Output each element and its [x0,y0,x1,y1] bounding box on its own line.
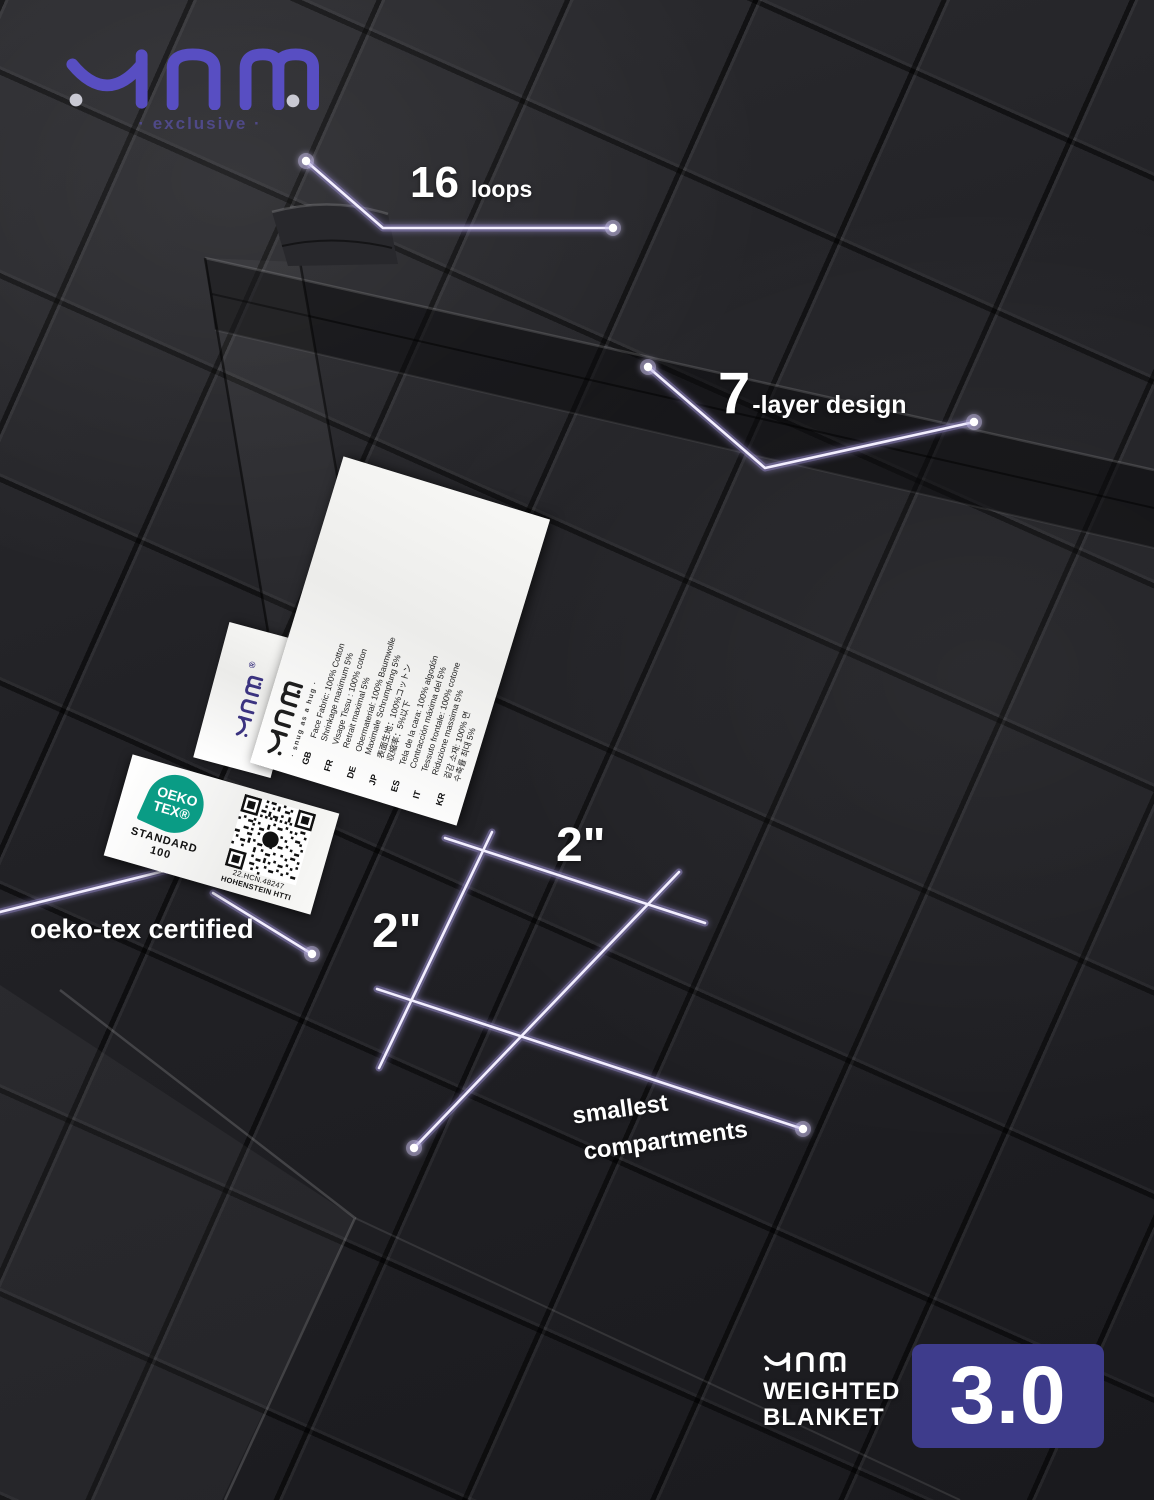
callout-certification: oeko-tex certified [30,914,254,945]
callout-loops: 16 loops [410,158,532,208]
badge-title-line1: WEIGHTED [763,1378,900,1406]
registered-mark: ® [246,660,257,669]
loops-count: 16 [410,158,459,208]
layers-label: -layer design [752,391,906,420]
leader-line-oeko-left [0,870,168,912]
annotation-overlay [0,0,1154,1500]
corner-loop-tab [272,204,398,266]
measurement-width: 2" [556,818,605,873]
version-number: 3.0 [950,1349,1067,1443]
ynm-logo [47,48,353,110]
loops-label: loops [471,176,532,203]
brand-tagline: · exclusive · [47,114,353,134]
badge-title-line2: BLANKET [763,1404,885,1432]
weighted-blanket-product-image: · exclusive · 16 loops 7 -layer design 2… [0,0,1154,1500]
layers-count: 7 [718,360,750,427]
callout-layers: 7 -layer design [718,360,907,427]
compartments-line1: smallest [571,1090,670,1130]
version-badge: 3.0 [912,1344,1104,1448]
measurement-height: 2" [372,904,421,959]
ynm-logo-badge [763,1352,851,1372]
